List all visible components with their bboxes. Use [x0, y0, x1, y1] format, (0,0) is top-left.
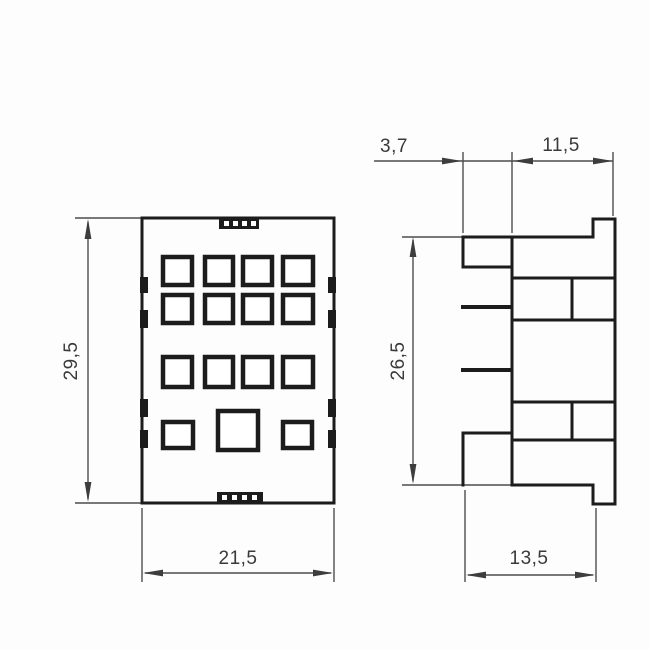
- side-top-dimensions: 3,7 11,5: [374, 135, 613, 233]
- front-holes-row2: [163, 295, 313, 323]
- side-height-label: 26,5: [388, 342, 409, 381]
- side-terminal-block-lower: [512, 402, 615, 440]
- technical-drawing-canvas: 29,5 21,5 3,7 11,5 26,5 13,5: [0, 0, 650, 650]
- front-height-dimension: 29,5: [61, 218, 141, 503]
- side-view: [461, 219, 615, 504]
- front-width-dimension: 21,5: [142, 508, 334, 582]
- front-view: [140, 217, 336, 503]
- front-holes-row4: [163, 411, 312, 450]
- front-bottom-vent: [217, 492, 263, 503]
- front-holes-row3: [163, 357, 313, 387]
- side-bottom-width-label: 13,5: [510, 548, 549, 569]
- side-plate-offset-label: 3,7: [380, 136, 408, 157]
- front-width-label: 21,5: [219, 548, 258, 569]
- side-body: [512, 219, 615, 504]
- front-holes-row1: [163, 257, 313, 285]
- front-top-vent: [219, 217, 259, 229]
- side-top-width-label: 11,5: [542, 135, 580, 156]
- side-bottom-dimension: 13,5: [465, 490, 596, 582]
- front-height-label: 29,5: [61, 342, 82, 381]
- side-terminal-block-upper: [512, 278, 615, 320]
- side-height-dimension: 26,5: [388, 237, 511, 485]
- side-plate: [463, 237, 512, 485]
- dimension-drawing: 29,5 21,5 3,7 11,5 26,5 13,5: [0, 0, 650, 650]
- side-pins: [461, 307, 512, 370]
